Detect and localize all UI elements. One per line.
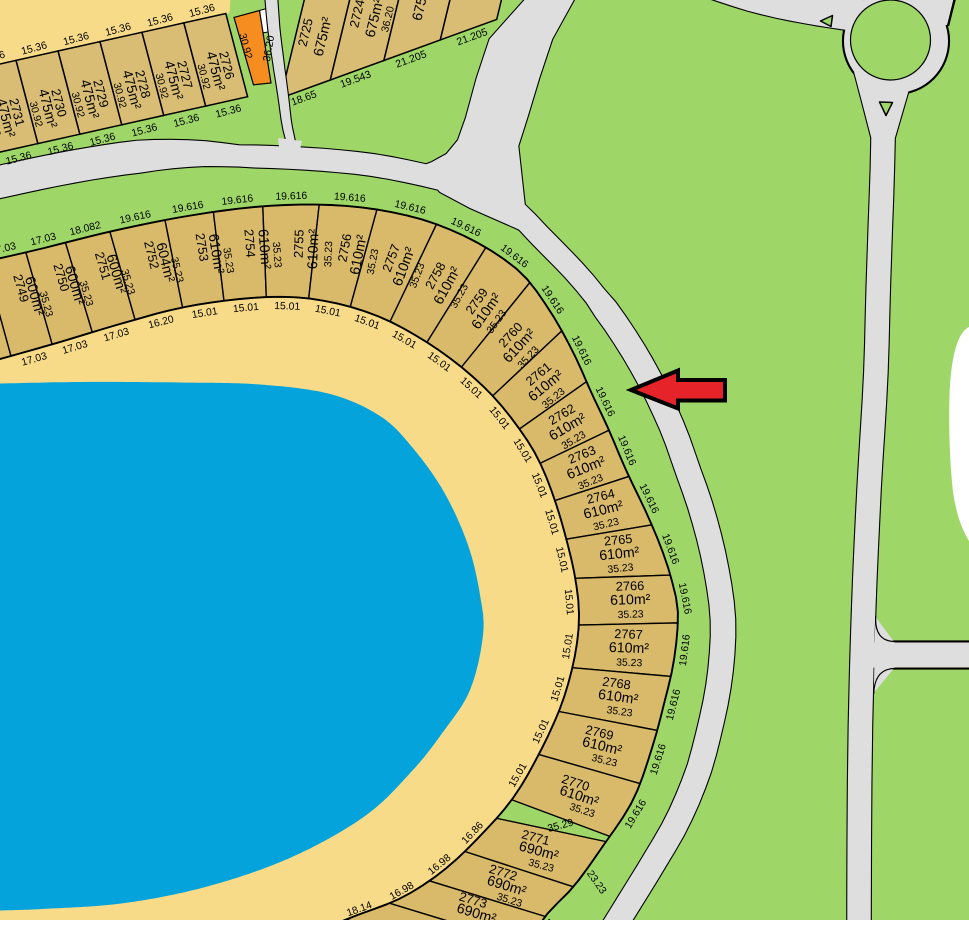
svg-text:35.23: 35.23 (616, 657, 643, 669)
svg-text:19.616: 19.616 (275, 191, 307, 203)
svg-text:610m²: 610m² (305, 228, 322, 269)
svg-text:2755: 2755 (291, 229, 307, 258)
svg-text:35.23: 35.23 (270, 241, 283, 268)
svg-text:610m²: 610m² (610, 592, 651, 609)
svg-text:35.23: 35.23 (617, 609, 644, 621)
svg-text:610m²: 610m² (609, 640, 650, 657)
svg-text:15.01: 15.01 (562, 589, 575, 616)
svg-text:15.01: 15.01 (274, 301, 301, 313)
svg-text:35.23: 35.23 (323, 241, 335, 268)
